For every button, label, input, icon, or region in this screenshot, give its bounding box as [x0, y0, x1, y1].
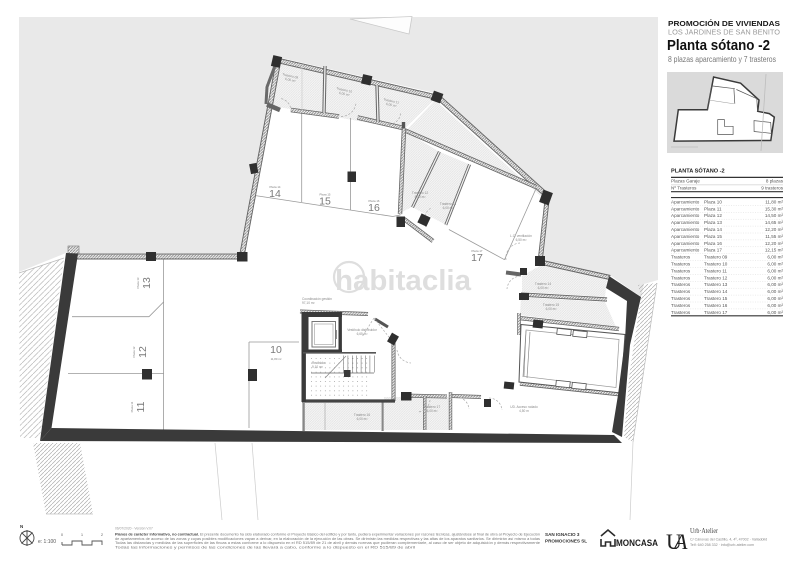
- svg-text:A: A: [672, 529, 688, 554]
- svg-text:6,00 m²: 6,00 m²: [357, 417, 368, 421]
- svg-text:Plaza 15: Plaza 15: [320, 193, 331, 197]
- svg-text:Plaza 14: Plaza 14: [704, 227, 722, 232]
- svg-text:C/ Cánovas del Castillo, 4, 4º: C/ Cánovas del Castillo, 4, 4º, 47002 · …: [690, 538, 767, 542]
- svg-text:N: N: [20, 524, 23, 529]
- svg-text:Plaza 17: Plaza 17: [704, 248, 722, 253]
- svg-text:Aparcamiento: Aparcamiento: [671, 241, 700, 246]
- svg-text:Plaza 17: Plaza 17: [472, 249, 483, 253]
- svg-text:Trasteros: Trasteros: [671, 296, 691, 301]
- svg-text:Trasteros: Trasteros: [671, 303, 691, 308]
- svg-text:Plaza 15: Plaza 15: [704, 234, 722, 239]
- svg-text:Plaza 10: Plaza 10: [704, 199, 722, 204]
- svg-text:6,00 m²: 6,00 m²: [767, 303, 783, 308]
- svg-text:6,00 m²: 6,00 m²: [767, 289, 783, 294]
- svg-text:Aparcamiento: Aparcamiento: [671, 206, 700, 211]
- svg-text:15,30 m²: 15,30 m²: [765, 206, 784, 211]
- svg-text:Trasteros: Trasteros: [671, 310, 691, 315]
- svg-text:12,20 m²: 12,20 m²: [765, 227, 784, 232]
- svg-text:11: 11: [135, 401, 147, 412]
- svg-text:9 trasteros: 9 trasteros: [761, 186, 783, 191]
- svg-text:9,10 m²: 9,10 m²: [312, 365, 323, 369]
- svg-text:6,65 m²: 6,65 m²: [357, 332, 368, 336]
- svg-text:Nº Trasteros: Nº Trasteros: [671, 186, 697, 191]
- svg-text:Trastero 15: Trastero 15: [704, 296, 728, 301]
- svg-text:Trasteros: Trasteros: [671, 282, 691, 287]
- svg-text:Plaza 12: Plaza 12: [132, 346, 136, 357]
- svg-text:Trasteros: Trasteros: [671, 262, 691, 267]
- svg-text:Trastero 17: Trastero 17: [704, 310, 728, 315]
- svg-text:SAN IGNACIO 3: SAN IGNACIO 3: [545, 532, 580, 537]
- svg-text:11,80 m²: 11,80 m²: [765, 199, 783, 204]
- svg-text:Trastero 12: Trastero 12: [704, 275, 728, 280]
- svg-text:6,00 m²: 6,00 m²: [767, 268, 783, 273]
- svg-text:12: 12: [137, 346, 149, 358]
- svg-text:06/07/2020 - Versión V.07: 06/07/2020 - Versión V.07: [115, 527, 153, 531]
- svg-text:6,00 m²: 6,00 m²: [427, 409, 438, 413]
- svg-text:6,50 m²: 6,50 m²: [516, 238, 527, 242]
- svg-text:0: 0: [61, 533, 63, 537]
- svg-text:Trastero 14: Trastero 14: [704, 289, 728, 294]
- svg-text:habitaclia: habitaclia: [335, 265, 472, 297]
- svg-text:Plaza 13: Plaza 13: [136, 277, 140, 288]
- svg-text:12,20 m²: 12,20 m²: [765, 241, 784, 246]
- svg-text:Planta sótano -2: Planta sótano -2: [667, 37, 770, 54]
- svg-text:Plaza 11: Plaza 11: [704, 206, 722, 211]
- svg-text:Plaza 12: Plaza 12: [704, 213, 722, 218]
- svg-text:Aparcamiento: Aparcamiento: [671, 213, 700, 218]
- svg-text:6,00 m²: 6,00 m²: [767, 262, 783, 267]
- svg-text:Trasteros: Trasteros: [671, 268, 691, 273]
- svg-text:16: 16: [368, 202, 380, 214]
- svg-text:Trastero 10: Trastero 10: [704, 262, 728, 267]
- svg-text:6,00 m²: 6,00 m²: [767, 310, 783, 315]
- svg-text:6,00 m²: 6,00 m²: [538, 286, 549, 290]
- svg-text:PLANTA SÓTANO -2: PLANTA SÓTANO -2: [671, 167, 725, 175]
- svg-text:Trasteros: Trasteros: [671, 255, 691, 260]
- svg-text:11,55 m²: 11,55 m²: [765, 234, 783, 239]
- svg-text:13: 13: [141, 277, 153, 289]
- svg-text:Aparcamiento: Aparcamiento: [671, 199, 700, 204]
- svg-text:Aparcamiento: Aparcamiento: [671, 220, 700, 225]
- svg-text:1: 1: [81, 533, 83, 537]
- svg-text:Telf: 640 258 332 · info@urb-a: Telf: 640 258 332 · info@urb-atelier.com: [690, 543, 754, 547]
- svg-text:8 plazas: 8 plazas: [766, 179, 784, 184]
- svg-text:Urb·Atelier: Urb·Atelier: [690, 526, 718, 535]
- svg-text:12,15 m²: 12,15 m²: [765, 248, 784, 253]
- svg-text:2: 2: [101, 533, 103, 537]
- svg-text:Aparcamiento: Aparcamiento: [671, 248, 700, 253]
- svg-text:Aparcamiento: Aparcamiento: [671, 234, 700, 239]
- svg-text:Trastero 16: Trastero 16: [704, 303, 728, 308]
- svg-text:6,00 m²: 6,00 m²: [443, 206, 454, 210]
- svg-text:Plaza 14: Plaza 14: [270, 185, 281, 189]
- svg-text:6,00 m²: 6,00 m²: [767, 275, 783, 280]
- svg-text:17: 17: [471, 252, 483, 264]
- svg-text:11,80 m²: 11,80 m²: [271, 357, 282, 361]
- svg-text:e: 1:100: e: 1:100: [38, 539, 56, 545]
- svg-text:Plazas Garaje: Plazas Garaje: [671, 179, 700, 184]
- svg-text:6,00 m²: 6,00 m²: [767, 255, 783, 260]
- svg-text:97,10 m²: 97,10 m²: [302, 301, 315, 305]
- svg-text:LOS JARDINES DE SAN BENITO: LOS JARDINES DE SAN BENITO: [668, 28, 780, 37]
- svg-text:Todas las informaciones y perm: Todas las informaciones y permisos de la…: [115, 545, 415, 549]
- svg-text:14,50 m²: 14,50 m²: [765, 213, 784, 218]
- svg-text:MONCASA: MONCASA: [616, 538, 658, 549]
- svg-text:PROMOCIONES SL: PROMOCIONES SL: [545, 539, 587, 544]
- svg-text:6,00 m²: 6,00 m²: [415, 195, 426, 199]
- svg-text:Plaza 16: Plaza 16: [369, 199, 380, 203]
- svg-text:Plaza 11: Plaza 11: [130, 401, 134, 412]
- svg-text:4,50 m: 4,50 m: [519, 409, 529, 413]
- svg-text:6,00 m²: 6,00 m²: [767, 282, 783, 287]
- svg-text:Trasteros: Trasteros: [671, 275, 691, 280]
- svg-text:6,00 m²: 6,00 m²: [546, 307, 557, 311]
- svg-text:Trasteros: Trasteros: [671, 289, 691, 294]
- svg-text:10: 10: [270, 344, 282, 356]
- svg-text:Aparcamiento: Aparcamiento: [671, 227, 700, 232]
- svg-text:Trastero 09: Trastero 09: [704, 255, 728, 260]
- svg-text:14: 14: [269, 188, 281, 200]
- svg-text:8 plazas aparcamiento y 7 tras: 8 plazas aparcamiento y 7 trasteros: [668, 54, 776, 64]
- svg-text:14,65 m²: 14,65 m²: [765, 220, 784, 225]
- svg-text:Plaza 16: Plaza 16: [704, 241, 722, 246]
- svg-text:15: 15: [319, 196, 331, 208]
- svg-text:Trastero 11: Trastero 11: [704, 268, 727, 273]
- svg-text:6,00 m²: 6,00 m²: [767, 296, 783, 301]
- svg-text:Plaza 13: Plaza 13: [704, 220, 722, 225]
- svg-text:Trastero 13: Trastero 13: [704, 282, 728, 287]
